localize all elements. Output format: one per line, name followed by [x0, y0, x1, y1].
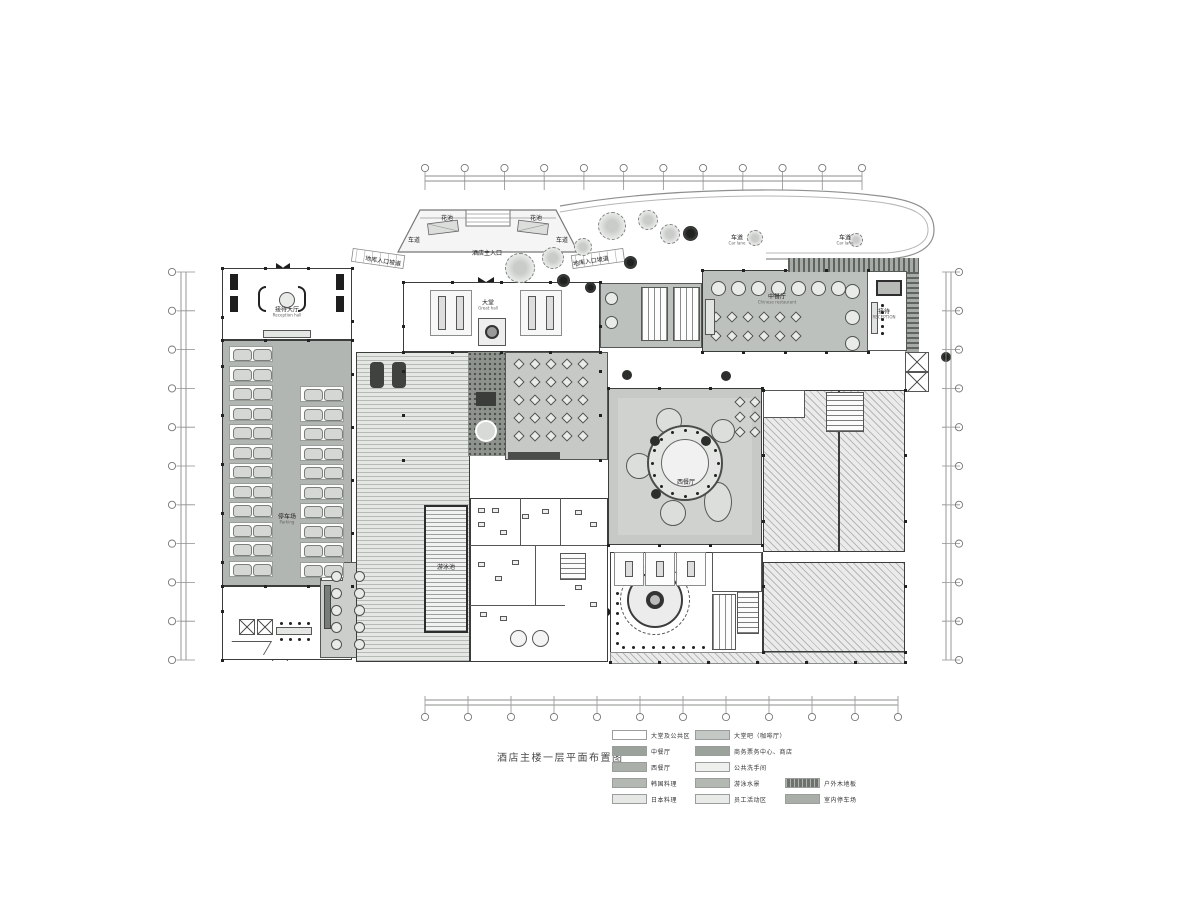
column-marker [904, 585, 907, 588]
plan-label-sub: Parking [279, 521, 295, 526]
column-marker [742, 351, 745, 354]
grid-axis-right [0, 0, 1200, 900]
column-marker [867, 269, 870, 272]
plan-label-sub: Great hall [478, 307, 498, 312]
column-marker [221, 365, 224, 368]
column-marker [221, 463, 224, 466]
column-marker [264, 339, 267, 342]
column-marker [825, 351, 828, 354]
column-marker [402, 414, 405, 417]
column-marker [904, 651, 907, 654]
column-marker [904, 454, 907, 457]
column-marker [402, 325, 405, 328]
plan-label-sub: RECEPTION [872, 316, 895, 321]
column-marker [607, 544, 610, 547]
column-marker [762, 651, 765, 654]
column-marker [805, 661, 808, 664]
column-marker [701, 351, 704, 354]
column-marker [221, 512, 224, 515]
column-marker [307, 267, 310, 270]
column-marker [761, 544, 764, 547]
column-marker [707, 661, 710, 664]
plan-label: 花池 [530, 216, 542, 222]
column-marker [904, 661, 907, 664]
plan-label-sub: Car lane [729, 242, 746, 247]
column-marker [402, 351, 405, 354]
column-marker [599, 459, 602, 462]
column-marker [351, 585, 354, 588]
column-marker [500, 281, 503, 284]
column-marker [825, 269, 828, 272]
column-marker [756, 661, 759, 664]
plan-label: 车道Car lane [836, 236, 855, 247]
column-marker [599, 370, 602, 373]
column-marker [867, 351, 870, 354]
plan-label: 车道 [556, 238, 568, 244]
column-marker [221, 659, 224, 662]
plan-label: 停车场Parking [278, 515, 296, 526]
plan-label: 游泳池 [437, 565, 455, 571]
column-marker [221, 339, 224, 342]
column-marker [307, 585, 310, 588]
column-marker [351, 479, 354, 482]
column-marker [451, 281, 454, 284]
column-marker [762, 520, 765, 523]
column-marker [701, 269, 704, 272]
column-marker [709, 387, 712, 390]
column-marker [402, 281, 405, 284]
column-marker [264, 585, 267, 588]
column-marker [549, 281, 552, 284]
plan-label: 酒店主入口 [472, 251, 502, 257]
column-marker [658, 544, 661, 547]
column-marker [599, 281, 602, 284]
column-marker [500, 351, 503, 354]
column-marker [854, 661, 857, 664]
column-marker [658, 387, 661, 390]
column-marker [549, 351, 552, 354]
column-marker [599, 325, 602, 328]
plan-label: 车道Car lane [728, 236, 747, 247]
column-marker [599, 351, 602, 354]
column-marker [351, 267, 354, 270]
column-marker [221, 610, 224, 613]
column-marker [762, 585, 765, 588]
column-marker [762, 454, 765, 457]
column-marker [784, 269, 787, 272]
column-marker [221, 414, 224, 417]
column-marker [351, 339, 354, 342]
floor-plan-canvas: 酒店主楼一层平面布置图 大堂及公共区中餐厅西餐厅韩国料理日本料理大堂吧（咖啡厅）… [0, 0, 1200, 900]
column-marker [351, 426, 354, 429]
column-marker [402, 459, 405, 462]
column-marker [762, 389, 765, 392]
plan-label: 接待大厅Reception hall [271, 308, 303, 319]
column-marker [351, 320, 354, 323]
column-marker [658, 661, 661, 664]
plan-label: 大堂Great hall [477, 301, 499, 312]
plan-label-sub: Car lane [837, 242, 854, 247]
column-marker [904, 389, 907, 392]
column-marker [351, 532, 354, 535]
plan-label-sub: Reception hall [273, 314, 302, 319]
column-marker [904, 520, 907, 523]
column-marker [351, 373, 354, 376]
column-marker [609, 661, 612, 664]
column-marker [709, 544, 712, 547]
column-marker [402, 370, 405, 373]
column-marker [221, 585, 224, 588]
column-marker [221, 267, 224, 270]
plan-label-sub: Chinese restaurant [758, 301, 797, 306]
plan-label: 接待RECEPTION [871, 310, 897, 321]
column-marker [307, 339, 310, 342]
column-marker [451, 351, 454, 354]
column-marker [742, 269, 745, 272]
column-marker [221, 316, 224, 319]
column-marker [264, 267, 267, 270]
column-marker [221, 561, 224, 564]
plan-label: 西餐厅 [677, 480, 695, 486]
column-marker [784, 351, 787, 354]
column-marker [607, 387, 610, 390]
plan-label: 车道 [408, 238, 420, 244]
plan-label: 中餐厅Chinese restaurant [756, 295, 799, 306]
column-marker [599, 414, 602, 417]
plan-label: 花池 [441, 216, 453, 222]
